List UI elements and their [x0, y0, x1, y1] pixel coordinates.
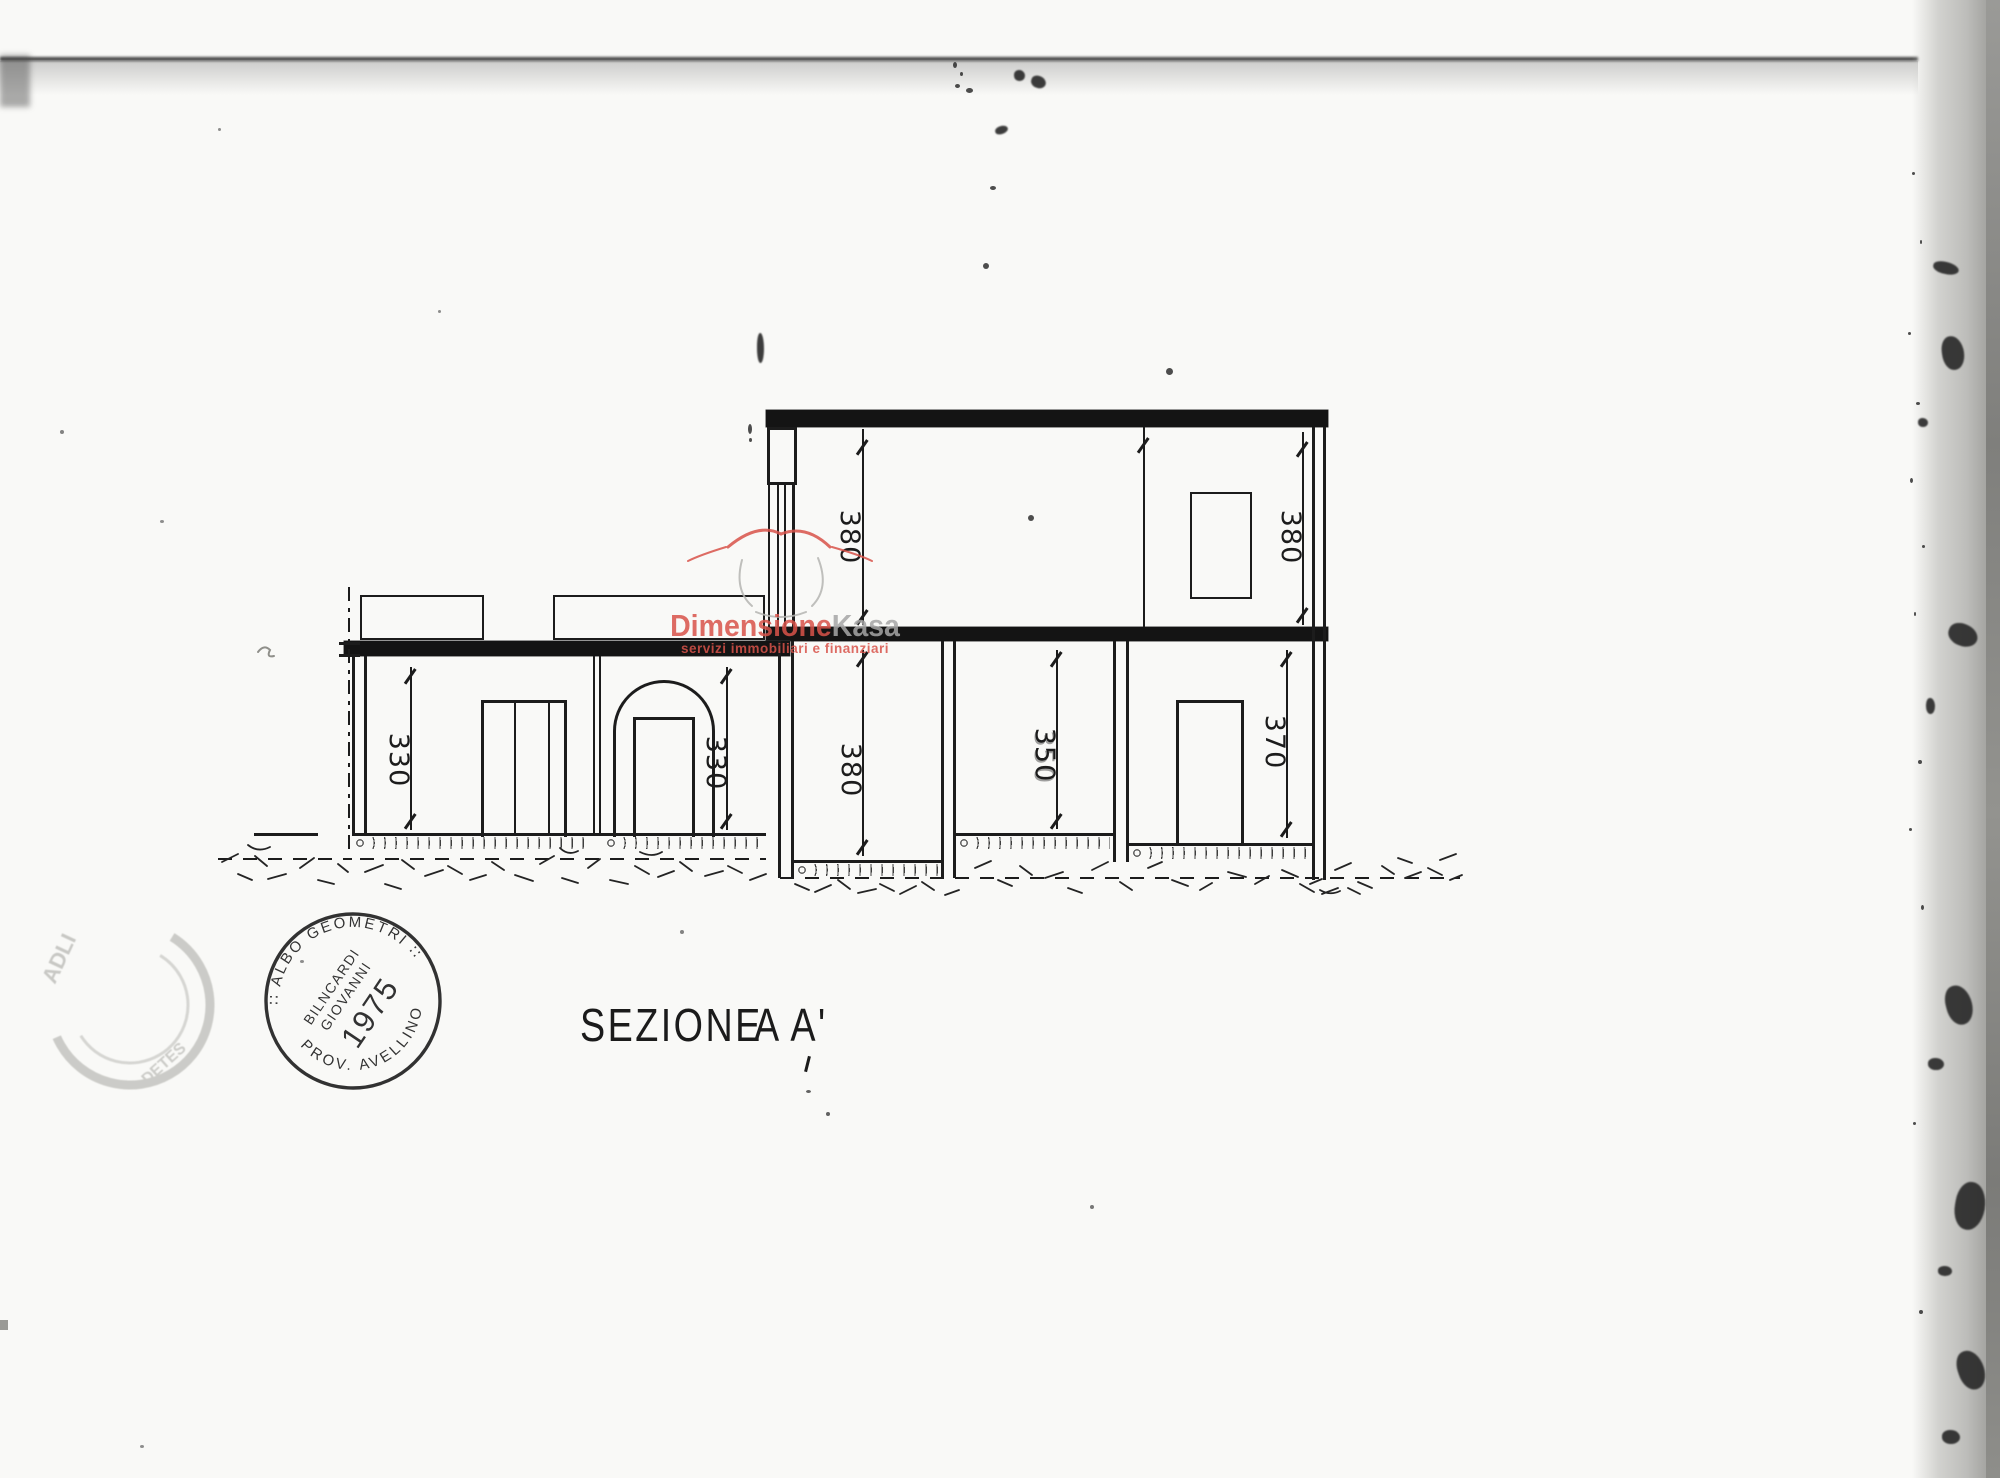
ink-blob	[1942, 1430, 1960, 1444]
interior-wall	[941, 641, 956, 878]
faint-stamp: ADLI DETES	[35, 905, 225, 1105]
speck	[990, 186, 996, 190]
door-leaf-line	[548, 700, 550, 834]
dim-label-upper-right: 380	[1276, 489, 1306, 585]
lower-left-wall	[778, 641, 794, 878]
drawing-title: SEZIONE	[580, 998, 763, 1052]
speck	[1914, 612, 1916, 616]
floor-line-room3	[1129, 843, 1312, 846]
ink-blob	[757, 333, 764, 363]
speck	[1921, 905, 1924, 910]
gravel-strip	[797, 864, 938, 876]
arch-door-elevation	[633, 717, 695, 837]
speck	[1028, 515, 1034, 521]
datum-dashed-line	[218, 858, 352, 860]
scan-right-edge	[1986, 0, 2000, 1478]
gravel-strip	[606, 837, 766, 849]
gravel-strip	[355, 837, 593, 849]
speck	[438, 310, 441, 313]
roof-slab	[766, 410, 1328, 427]
speck	[749, 438, 752, 442]
dim-label-lower-2: 350	[1030, 707, 1060, 803]
scanned-section-drawing: 380 380 380 350 370 330	[0, 0, 2000, 1478]
upper-window-elevation	[1190, 492, 1252, 599]
page-top-left-shadow	[0, 55, 30, 107]
parapet-left	[360, 595, 484, 640]
ink-blob	[1926, 698, 1935, 714]
terrace-left-wall	[352, 656, 367, 834]
stray-tick	[804, 1056, 811, 1072]
edge-mark	[0, 1320, 8, 1330]
speck	[1918, 760, 1922, 764]
dim-label-lower-3: 370	[1260, 694, 1290, 790]
registry-stamp: ∷ ALBO GEOMETRI ∷ PROV. AVELLINO BILNCAR…	[258, 906, 448, 1096]
speck	[218, 128, 221, 131]
speck	[1090, 1205, 1094, 1209]
speck	[806, 1090, 811, 1093]
speck	[60, 430, 64, 434]
speck	[748, 424, 752, 434]
ink-blob	[1014, 70, 1025, 81]
interior-wall	[1113, 641, 1129, 862]
slab-stub	[339, 642, 360, 645]
speck	[960, 72, 963, 76]
watermark-brand-primary: Dimensione	[670, 608, 832, 643]
interior-wall-line	[1143, 427, 1145, 627]
speck	[1166, 368, 1173, 375]
ink-blob	[1918, 418, 1928, 427]
ink-blob	[1928, 1058, 1944, 1070]
lower-door-elevation	[1176, 700, 1244, 846]
speck	[966, 88, 973, 93]
watermark-tagline: servizi immobiliari e finanziari	[681, 641, 889, 656]
dim-label-left-1: 330	[384, 712, 414, 808]
facade-window-section	[767, 427, 797, 485]
gravel-strip	[959, 837, 1110, 849]
right-exterior-wall	[1312, 427, 1326, 880]
datum-dashed-line	[780, 877, 1460, 879]
section-axis-dashed	[348, 587, 350, 852]
speck	[1919, 1310, 1923, 1314]
speck	[1912, 172, 1915, 175]
floor-stub-left	[254, 833, 318, 836]
speck	[1909, 828, 1912, 831]
speck	[1922, 545, 1925, 548]
speck	[1913, 1122, 1916, 1125]
speck	[1920, 240, 1922, 244]
floor-line-room2	[956, 833, 1113, 836]
speck	[826, 1112, 830, 1116]
watermark-brand-secondary: Kasa	[832, 608, 900, 643]
ground-scribbles	[0, 0, 2000, 1478]
watermark: DimensioneKasa servizi immobiliari e fin…	[640, 515, 930, 665]
dim-label-left-2: 330	[701, 715, 731, 811]
faint-stamp-fragment-top: ADLI	[37, 930, 81, 987]
terrace-mid-wall	[593, 656, 601, 834]
drawing-title-suffix: A A'	[754, 998, 828, 1052]
speck	[160, 520, 164, 523]
speck	[983, 263, 989, 269]
speck	[955, 84, 960, 88]
floor-line-deep-room	[794, 860, 941, 863]
datum-dashed-line	[360, 858, 766, 860]
speck	[1908, 332, 1911, 335]
ink-blob	[994, 124, 1009, 136]
dim-label-lower-1: 380	[836, 722, 866, 818]
gravel-strip	[1132, 847, 1310, 859]
speck	[1916, 402, 1920, 405]
speck	[680, 930, 684, 934]
door-leaf-line	[514, 700, 516, 834]
page-top-shade	[0, 61, 1918, 95]
speck	[1910, 478, 1913, 483]
speck	[953, 62, 957, 68]
watermark-brand: DimensioneKasa	[670, 608, 900, 644]
speck	[140, 1445, 144, 1448]
ink-blob	[1938, 1266, 1952, 1276]
terrace-door-elevation	[481, 700, 567, 837]
